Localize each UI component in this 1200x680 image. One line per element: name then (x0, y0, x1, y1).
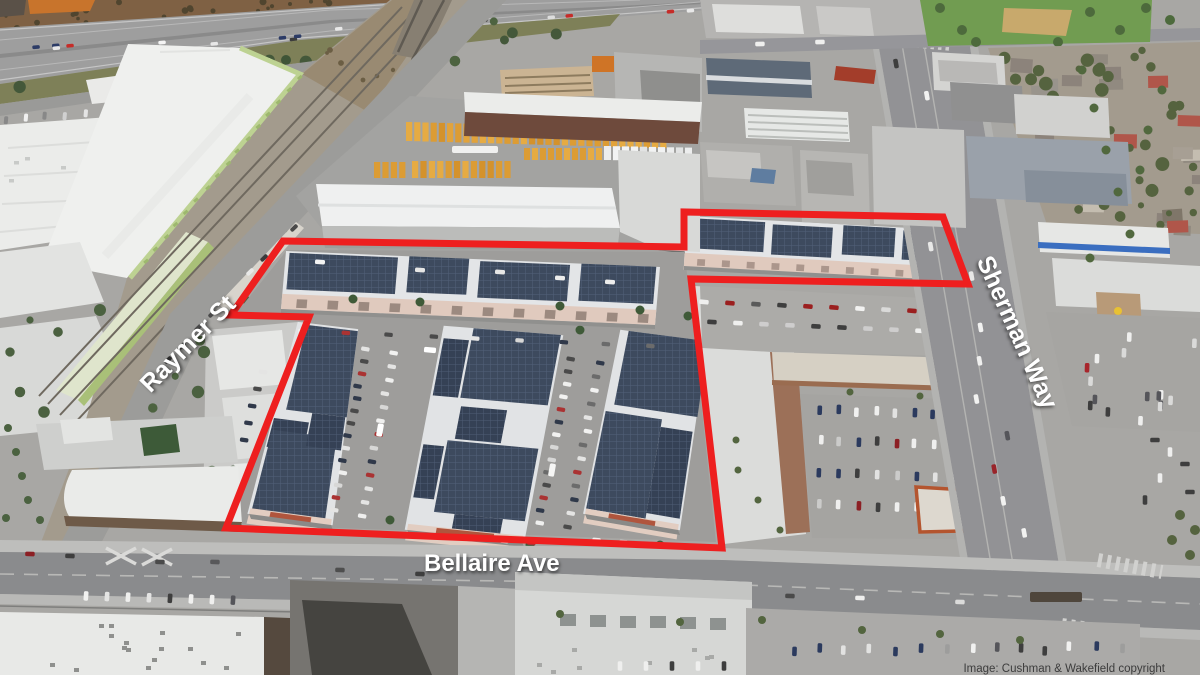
svg-text:Image: Cushman & Wakefield cop: Image: Cushman & Wakefield copyright (963, 663, 1165, 675)
svg-text:Bellaire Ave: Bellaire Ave (424, 550, 560, 577)
